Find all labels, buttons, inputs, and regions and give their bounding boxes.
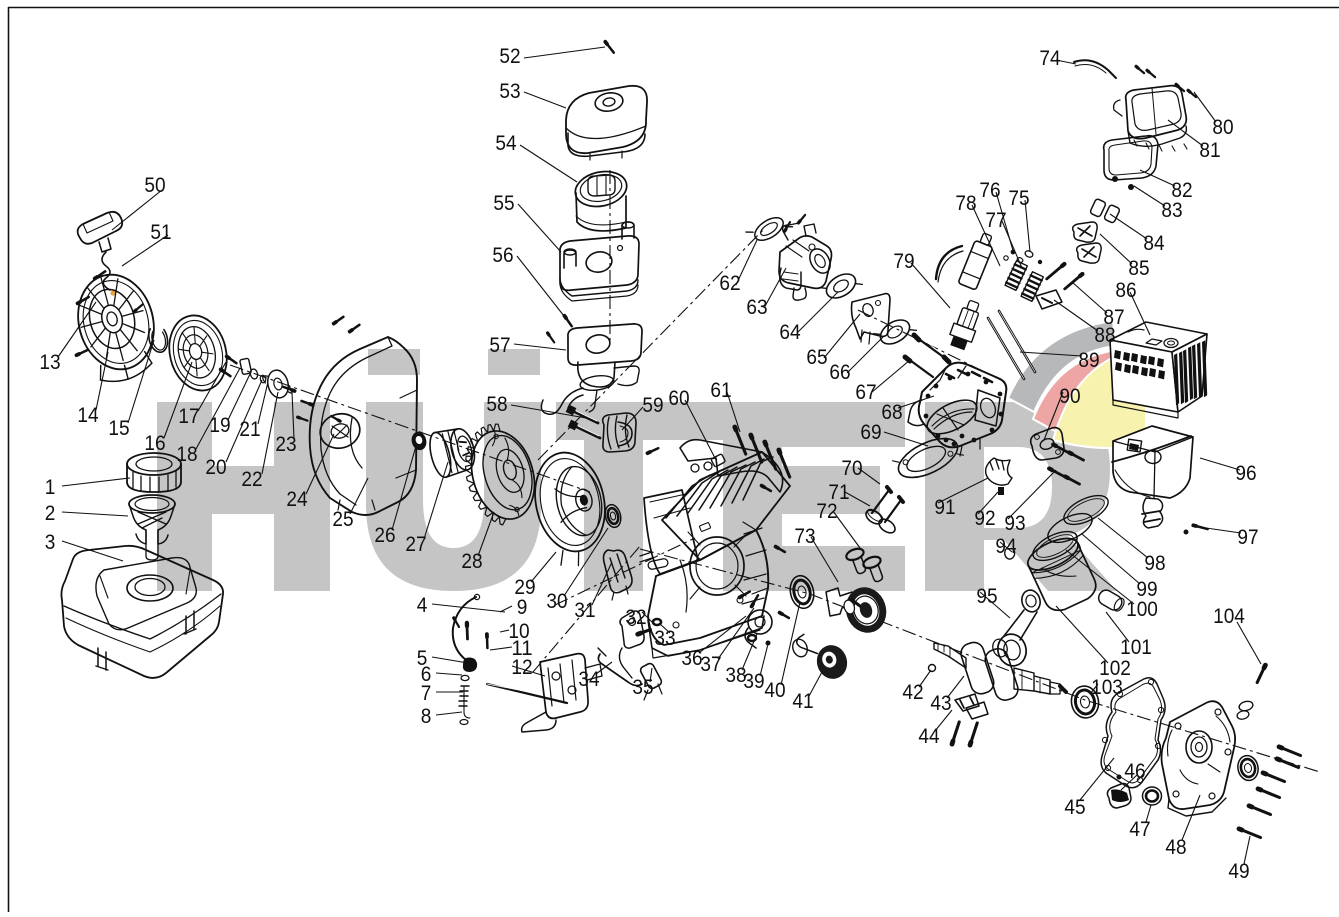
svg-text:57: 57 [489, 334, 510, 357]
svg-text:21: 21 [239, 418, 260, 441]
svg-text:75: 75 [1008, 187, 1029, 210]
svg-text:63: 63 [746, 296, 767, 319]
svg-text:43: 43 [930, 692, 951, 715]
svg-text:54: 54 [495, 132, 516, 155]
svg-text:31: 31 [574, 599, 595, 622]
svg-text:24: 24 [286, 488, 307, 511]
svg-text:64: 64 [779, 321, 800, 344]
svg-text:3: 3 [45, 531, 56, 554]
svg-text:67: 67 [855, 381, 876, 404]
svg-text:103: 103 [1091, 676, 1123, 699]
svg-text:16: 16 [144, 432, 165, 455]
svg-text:95: 95 [976, 585, 997, 608]
svg-text:29: 29 [514, 576, 535, 599]
svg-text:26: 26 [374, 524, 395, 547]
svg-text:89: 89 [1078, 349, 1099, 372]
svg-text:48: 48 [1165, 836, 1186, 859]
svg-text:33: 33 [654, 627, 675, 650]
svg-text:23: 23 [275, 433, 296, 456]
svg-text:66: 66 [829, 361, 850, 384]
svg-text:72: 72 [816, 500, 837, 523]
svg-text:86: 86 [1115, 279, 1136, 302]
svg-text:45: 45 [1064, 796, 1085, 819]
svg-text:9: 9 [517, 596, 528, 619]
svg-text:55: 55 [493, 192, 514, 215]
svg-text:7: 7 [421, 682, 432, 705]
svg-text:70: 70 [841, 457, 862, 480]
svg-text:20: 20 [205, 456, 226, 479]
svg-text:62: 62 [719, 272, 740, 295]
svg-text:77: 77 [985, 209, 1006, 232]
svg-text:39: 39 [743, 670, 764, 693]
svg-text:17: 17 [178, 405, 199, 428]
svg-text:30: 30 [546, 590, 567, 613]
svg-text:52: 52 [499, 45, 520, 68]
svg-text:84: 84 [1143, 232, 1164, 255]
svg-text:104: 104 [1213, 605, 1245, 628]
svg-text:18: 18 [176, 443, 197, 466]
svg-text:47: 47 [1129, 818, 1150, 841]
svg-text:100: 100 [1126, 598, 1158, 621]
svg-text:96: 96 [1235, 462, 1256, 485]
svg-text:80: 80 [1212, 116, 1233, 139]
svg-text:79: 79 [893, 250, 914, 273]
svg-text:2: 2 [45, 502, 56, 525]
svg-text:53: 53 [499, 80, 520, 103]
svg-text:22: 22 [241, 468, 262, 491]
svg-text:88: 88 [1094, 324, 1115, 347]
svg-text:1: 1 [45, 476, 56, 499]
svg-text:94: 94 [995, 535, 1016, 558]
svg-text:65: 65 [806, 346, 827, 369]
svg-text:44: 44 [918, 725, 939, 748]
svg-text:74: 74 [1039, 47, 1060, 70]
svg-text:49: 49 [1228, 860, 1249, 883]
svg-text:27: 27 [405, 533, 426, 556]
svg-text:68: 68 [881, 401, 902, 424]
svg-text:85: 85 [1128, 257, 1149, 280]
svg-text:4: 4 [417, 594, 428, 617]
svg-text:42: 42 [902, 681, 923, 704]
svg-text:28: 28 [461, 550, 482, 573]
svg-text:76: 76 [979, 179, 1000, 202]
svg-text:59: 59 [642, 394, 663, 417]
svg-text:93: 93 [1004, 512, 1025, 535]
svg-text:32: 32 [625, 606, 646, 629]
svg-text:40: 40 [764, 679, 785, 702]
svg-text:101: 101 [1120, 636, 1152, 659]
svg-text:19: 19 [209, 414, 230, 437]
svg-text:46: 46 [1124, 760, 1145, 783]
svg-text:12: 12 [511, 656, 532, 679]
svg-text:61: 61 [710, 379, 731, 402]
svg-text:8: 8 [421, 705, 432, 728]
svg-text:69: 69 [860, 421, 881, 444]
svg-text:91: 91 [934, 496, 955, 519]
svg-text:83: 83 [1161, 199, 1182, 222]
svg-text:25: 25 [332, 508, 353, 531]
svg-text:41: 41 [792, 690, 813, 713]
svg-text:78: 78 [955, 192, 976, 215]
svg-text:34: 34 [578, 668, 599, 691]
svg-text:90: 90 [1059, 385, 1080, 408]
svg-text:92: 92 [974, 507, 995, 530]
svg-text:14: 14 [77, 404, 98, 427]
svg-text:15: 15 [108, 417, 129, 440]
svg-text:58: 58 [486, 393, 507, 416]
svg-text:35: 35 [632, 676, 653, 699]
svg-text:56: 56 [492, 244, 513, 267]
svg-text:81: 81 [1199, 139, 1220, 162]
svg-text:13: 13 [39, 351, 60, 374]
svg-text:50: 50 [144, 174, 165, 197]
svg-text:37: 37 [700, 653, 721, 676]
svg-text:73: 73 [794, 525, 815, 548]
svg-text:98: 98 [1144, 552, 1165, 575]
svg-text:60: 60 [668, 387, 689, 410]
svg-text:97: 97 [1237, 526, 1258, 549]
svg-text:51: 51 [150, 221, 171, 244]
